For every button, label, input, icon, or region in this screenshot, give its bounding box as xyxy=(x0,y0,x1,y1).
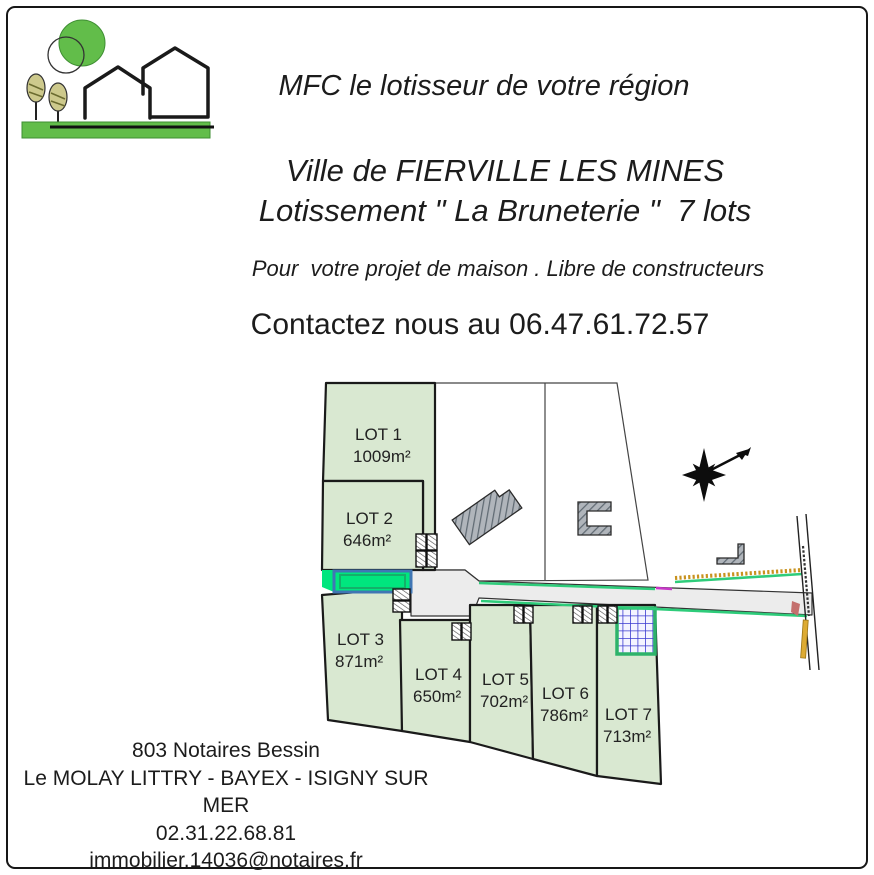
lot-5-area: 702m² xyxy=(480,692,529,711)
lot-1-area: 1009m² xyxy=(353,447,411,466)
notary-cities: Le MOLAY LITTRY - BAYEX - ISIGNY SUR MER xyxy=(10,765,442,820)
lot-7-area: 713m² xyxy=(603,727,652,746)
city-title: Ville de FIERVILLE LES MINES xyxy=(200,153,810,189)
lot-6-name: LOT 6 xyxy=(542,684,589,703)
yellow-marker xyxy=(801,620,809,658)
lot-2-area: 646m² xyxy=(343,531,392,550)
subdivision-title: Lotissement " La Bruneterie " 7 lots xyxy=(200,193,810,229)
lot-4-area: 650m² xyxy=(413,687,462,706)
flyer: MFC le lotisseur de votre région Ville d… xyxy=(0,0,874,875)
company-tagline: MFC le lotisseur de votre région xyxy=(180,70,788,103)
boundary-magenta xyxy=(656,588,672,589)
lot-6-area: 786m² xyxy=(540,706,589,725)
lot-2-name: LOT 2 xyxy=(346,509,393,528)
retention-basin xyxy=(617,608,655,654)
notary-email: immobilier.14036@notaires.fr xyxy=(10,847,442,875)
lot-1-name: LOT 1 xyxy=(355,425,402,444)
small-trees-icon xyxy=(27,74,67,123)
notary-phone: 02.31.22.68.81 xyxy=(10,820,442,848)
green-verge xyxy=(322,570,334,592)
contact-phone: Contactez nous au 06.47.61.72.57 xyxy=(175,308,785,342)
ground-icon xyxy=(22,122,210,138)
lot-5-name: LOT 5 xyxy=(482,670,529,689)
lot-4-name: LOT 4 xyxy=(415,665,462,684)
lot-7-name: LOT 7 xyxy=(605,705,652,724)
notary-name: 803 Notaires Bessin xyxy=(10,737,442,765)
notary-block: 803 Notaires Bessin Le MOLAY LITTRY - BA… xyxy=(10,737,442,875)
neighbour-parcels xyxy=(435,383,648,581)
lot-3-area: 871m² xyxy=(335,652,384,671)
compass-rose-icon xyxy=(681,447,751,502)
existing-building-l xyxy=(717,544,744,564)
pitch-line: Pour votre projet de maison . Libre de c… xyxy=(205,256,811,282)
tree-crown-icon xyxy=(59,20,105,66)
lot-3-name: LOT 3 xyxy=(337,630,384,649)
